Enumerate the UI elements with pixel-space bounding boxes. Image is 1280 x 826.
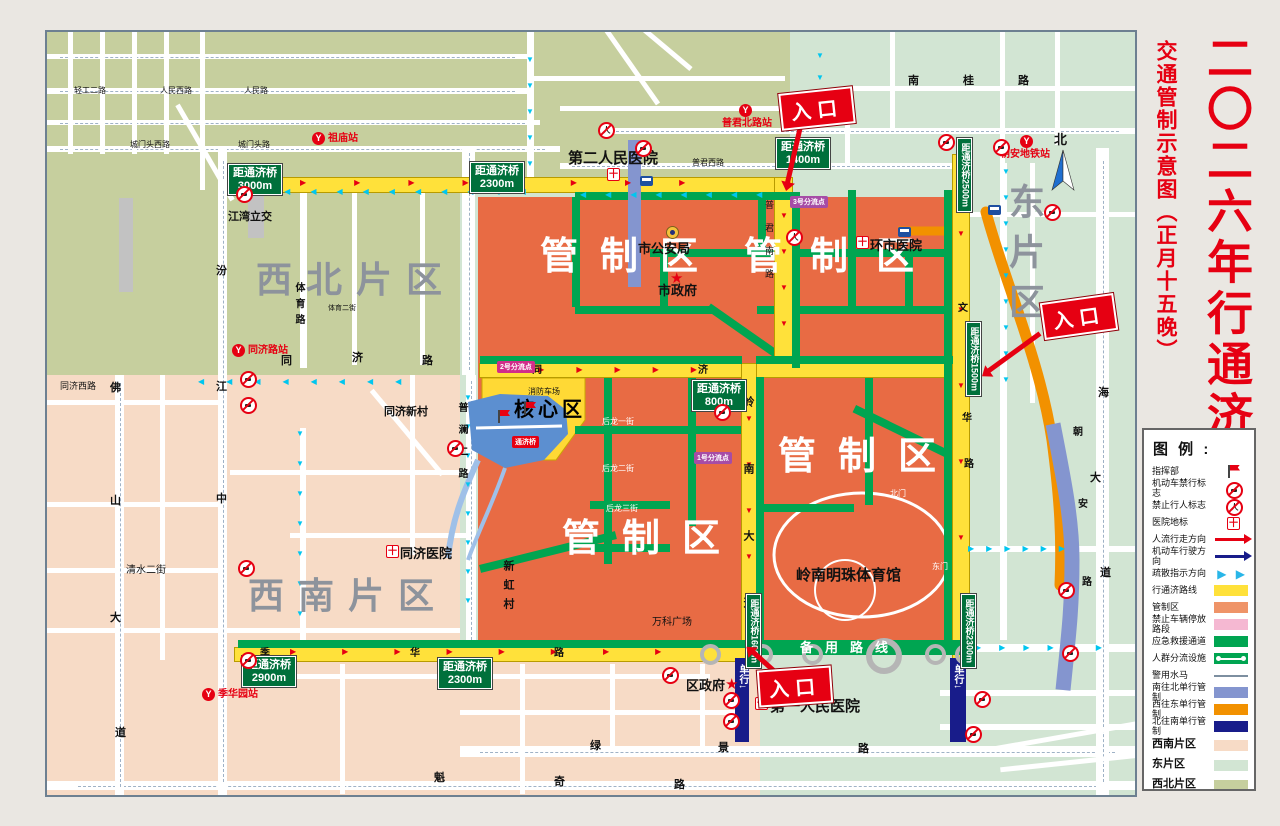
flow-arrow-icon: ▼ bbox=[526, 82, 534, 90]
road-label: 中 bbox=[216, 494, 227, 505]
flow-arrow-icon: ▶ bbox=[603, 648, 609, 656]
legend-swatch bbox=[1214, 619, 1248, 630]
flow-arrow-icon: ▼ bbox=[296, 430, 304, 438]
road-label: 佛 bbox=[110, 383, 121, 394]
distance-sign-text: 距通济桥 bbox=[781, 141, 825, 153]
road-label: 后龙三街 bbox=[606, 505, 638, 513]
district-label-northwest: 西北片区 bbox=[256, 262, 456, 298]
legend-item-label: 管制区 bbox=[1152, 603, 1214, 612]
landmark-jiangwan-interchange: 江湾立交 bbox=[228, 212, 272, 223]
road-label: 江 bbox=[216, 382, 227, 393]
flow-arrow-icon: ▼ bbox=[296, 460, 304, 468]
distance-sign-value: 2300m bbox=[448, 674, 482, 686]
flow-arrow-icon: ◀ bbox=[363, 188, 369, 196]
no-vehicle-sign-icon bbox=[238, 560, 255, 577]
legend-swatch-water-barrier bbox=[1214, 675, 1248, 677]
legend-icon-box bbox=[1214, 482, 1248, 496]
flow-arrow-icon: ▼ bbox=[957, 534, 965, 542]
map-panel: ◀◀◀◀◀◀◀◀◀◀◀◀◀◀◀◀◀◀◀◀◀◀◀◀◀◀◀▼▼▼▼▼▼▼▼▼▼▼▼▼… bbox=[45, 30, 1137, 797]
legend-item-label: 人流行走方向 bbox=[1152, 535, 1214, 544]
control-zone-label: 管制区 bbox=[562, 520, 742, 558]
landmark-huanshi-hospital: 环市医院 bbox=[870, 239, 922, 252]
legend-swatch bbox=[1214, 780, 1248, 791]
flow-arrow-icon: ▶ bbox=[655, 648, 661, 656]
road-label: 山 bbox=[110, 496, 121, 507]
control-zone-label: 管制区 bbox=[540, 238, 720, 276]
flow-arrow-icon: ▶ bbox=[290, 648, 296, 656]
no-vehicle-sign-icon bbox=[635, 140, 652, 157]
legend-item-label: 北往南单行管制 bbox=[1152, 717, 1214, 736]
flow-arrow-icon: ▶ bbox=[462, 179, 468, 187]
metro-station-icon: Y bbox=[232, 344, 245, 357]
distance-sign-text: 距通济桥 bbox=[233, 167, 277, 179]
flow-arrow-icon: ▶ bbox=[300, 179, 306, 187]
bus-stop-icon bbox=[988, 205, 1001, 215]
landmark-tongji-xincun: 同济新村 bbox=[384, 407, 428, 418]
no-vehicle-sign-icon bbox=[723, 692, 740, 709]
legend-arrow-icon bbox=[1215, 555, 1245, 558]
flow-arrow-icon: ▶ bbox=[394, 648, 400, 656]
road-label: 安 bbox=[1078, 500, 1088, 510]
road-label: 朝 bbox=[1073, 428, 1083, 438]
no-vehicle-sign-icon bbox=[1226, 482, 1243, 499]
road-label: 后龙一街 bbox=[602, 418, 634, 426]
road-label: 路 bbox=[422, 356, 433, 367]
flow-arrow-icon: ▶ bbox=[1004, 545, 1010, 553]
legend-item: 人群分流设施 bbox=[1152, 650, 1248, 667]
map-badge: 3号分流点 bbox=[790, 196, 828, 208]
legend-item-label: 警用水马 bbox=[1152, 671, 1214, 680]
metro-station-label: 普君北路站 bbox=[722, 119, 772, 129]
legend-item-label: 医院地标 bbox=[1152, 518, 1214, 527]
no-vehicle-sign-icon bbox=[447, 440, 464, 457]
no-vehicle-sign-icon bbox=[236, 186, 253, 203]
legend-item-label: 行通济路线 bbox=[1152, 586, 1214, 595]
flow-arrow-icon: ▶ bbox=[625, 179, 631, 187]
legend-item-label: 禁止车辆停放路段 bbox=[1152, 615, 1214, 634]
flow-arrow-icon: ◀ bbox=[395, 378, 401, 386]
legend-item: 禁止行人标志人 bbox=[1152, 497, 1248, 514]
direction-arrows: ▼▼▼▼▼ bbox=[957, 230, 965, 542]
emergency-lane bbox=[238, 640, 756, 648]
control-zone-label: 管制区 bbox=[778, 438, 958, 476]
flow-arrow-icon: ▶ bbox=[614, 366, 620, 374]
flow-arrow-icon: ▶ bbox=[1096, 644, 1102, 652]
road-label: 华 bbox=[410, 649, 420, 659]
hospital-landmark-icon: 十 bbox=[856, 236, 869, 249]
flow-arrow-icon: ◀ bbox=[311, 378, 317, 386]
distance-sign-text: 距通济桥 bbox=[964, 599, 974, 635]
legend-item: 西南片区 bbox=[1152, 735, 1248, 755]
metro-station-label: 祖庙站 bbox=[328, 134, 358, 144]
flow-arrow-icon: ▶ bbox=[1022, 545, 1028, 553]
no-vehicle-sign-icon bbox=[662, 667, 679, 684]
bus-stop-icon bbox=[640, 176, 653, 186]
legend-item-label: 西南片区 bbox=[1152, 739, 1214, 751]
legend-arrow-icon bbox=[1215, 538, 1245, 541]
flow-arrow-icon: ◀ bbox=[756, 191, 762, 199]
legend-swatch bbox=[1214, 636, 1248, 647]
command-post-flag-icon bbox=[498, 410, 500, 423]
metro-station-icon: Y bbox=[312, 132, 325, 145]
road-label: 体育二街 bbox=[328, 305, 356, 312]
direction-arrows: ▶▶▶▶▶▶ bbox=[968, 545, 1065, 553]
flow-arrow-icon: ▶ bbox=[1047, 644, 1053, 652]
map-badge: 2号分流点 bbox=[497, 361, 535, 373]
flow-arrow-icon: ▼ bbox=[464, 510, 472, 518]
road-label: 普君西路 bbox=[692, 159, 724, 167]
flow-arrow-icon: ▼ bbox=[957, 382, 965, 390]
traffic-map-poster: ◀◀◀◀◀◀◀◀◀◀◀◀◀◀◀◀◀◀◀◀◀◀◀◀◀◀◀▼▼▼▼▼▼▼▼▼▼▼▼▼… bbox=[0, 0, 1280, 826]
no-vehicle-sign-icon bbox=[240, 371, 257, 388]
flow-arrow-icon: ▶ bbox=[1023, 644, 1029, 652]
flow-arrow-icon: ▶ bbox=[499, 648, 505, 656]
hospital-landmark-icon: 十 bbox=[607, 168, 620, 181]
flow-arrow-icon: ◀ bbox=[226, 378, 232, 386]
emergency-lane bbox=[575, 426, 742, 434]
legend-icon-box: 十 bbox=[1214, 516, 1248, 530]
road-label: 绿 bbox=[590, 741, 601, 752]
distance-sign-text: 距通济桥 bbox=[960, 143, 970, 179]
legend-item-label: 指挥部 bbox=[1152, 467, 1214, 476]
flow-arrow-icon: ◀ bbox=[706, 191, 712, 199]
legend-icon-box: 人 bbox=[1214, 499, 1248, 513]
legend-icon-box bbox=[1214, 465, 1248, 479]
legend-item: 应急救援通道 bbox=[1152, 633, 1248, 650]
flow-arrow-icon: ◀ bbox=[681, 191, 687, 199]
flow-arrow-icon: ▶ bbox=[354, 179, 360, 187]
distance-sign-value: 2500m bbox=[960, 179, 970, 207]
legend-item: 北往南单行管制 bbox=[1152, 718, 1248, 735]
road-label: 普君南路 bbox=[764, 200, 773, 292]
no-vehicle-sign-icon bbox=[974, 691, 991, 708]
legend-swatch bbox=[1214, 740, 1248, 751]
flow-arrow-icon: ▶ bbox=[691, 366, 697, 374]
entrance-sign: 入口 bbox=[778, 86, 855, 131]
road-label: 华 bbox=[962, 414, 972, 424]
metro-station-icon: Y bbox=[202, 688, 215, 701]
government-star-icon: ★ bbox=[725, 677, 738, 692]
road-label: 体育路 bbox=[293, 282, 303, 330]
flow-arrow-icon: ◀ bbox=[310, 188, 316, 196]
no-vehicle-sign-icon bbox=[993, 139, 1010, 156]
legend-item: 禁止车辆停放路段 bbox=[1152, 616, 1248, 633]
flow-arrow-icon: ▶ bbox=[342, 648, 348, 656]
government-star-icon: ★ bbox=[670, 271, 683, 286]
flow-arrow-icon: ◀ bbox=[336, 188, 342, 196]
no-vehicle-sign-icon bbox=[1062, 645, 1079, 662]
road-label: 大 bbox=[1090, 473, 1101, 484]
flow-arrow-icon: ◀ bbox=[580, 191, 586, 199]
flow-arrow-icon: ▼ bbox=[1002, 376, 1010, 384]
flow-arrow-icon: ◀ bbox=[367, 378, 373, 386]
landmark-vanke-plaza: 万科广场 bbox=[652, 618, 692, 628]
metro-station-icon: Y bbox=[1020, 135, 1033, 148]
road-label: 海 bbox=[1098, 388, 1109, 399]
flow-arrow-icon: ▼ bbox=[780, 320, 788, 328]
road-label: 同济西路 bbox=[60, 382, 96, 391]
metro-station-label: 季华园站 bbox=[218, 690, 258, 700]
flow-arrow-icon: ◀ bbox=[731, 191, 737, 199]
flow-arrow-icon: ▼ bbox=[957, 230, 965, 238]
metro-station-icon: Y bbox=[739, 104, 752, 117]
road-label: 南桂路 bbox=[908, 76, 1073, 87]
flow-arrow-icon: ◀ bbox=[389, 188, 395, 196]
flow-arrow-icon: ◀ bbox=[198, 378, 204, 386]
legend-item-label: 东片区 bbox=[1152, 759, 1214, 771]
road-label: 路 bbox=[554, 649, 564, 659]
entrance-sign: 入口 bbox=[757, 665, 833, 707]
direction-arrows: ▶▶▶▶▶▶▶▶ bbox=[290, 648, 661, 656]
emergency-lane bbox=[756, 356, 953, 364]
no-vehicle-sign-icon bbox=[714, 404, 731, 421]
emergency-lane bbox=[575, 306, 712, 314]
road-label: 路 bbox=[674, 780, 685, 791]
no-vehicle-sign-icon bbox=[1044, 204, 1061, 221]
flow-arrow-icon: ▼ bbox=[296, 550, 304, 558]
compass-north-label: 北 bbox=[1054, 133, 1067, 146]
distance-sign: 距通济桥2500m bbox=[957, 138, 972, 212]
no-vehicle-sign-icon bbox=[938, 134, 955, 151]
legend-item: 东片区 bbox=[1152, 755, 1248, 775]
road-label: 济 bbox=[698, 366, 708, 376]
road-label: 城门头西路 bbox=[130, 141, 170, 149]
backup-route-label: 备用路线 bbox=[800, 641, 900, 654]
no-vehicle-sign-icon bbox=[240, 652, 257, 669]
road-label: 人民路 bbox=[244, 87, 268, 95]
flow-arrow-icon: ◀ bbox=[441, 188, 447, 196]
command-post-flag-icon bbox=[1228, 465, 1230, 478]
flow-arrow-icon: ▼ bbox=[816, 52, 824, 60]
map-badge: 1号分流点 bbox=[694, 452, 732, 464]
road-label: 道 bbox=[115, 728, 126, 739]
road-label: 轻工二路 bbox=[74, 87, 106, 95]
flow-arrow-icon: ▼ bbox=[296, 490, 304, 498]
flow-arrow-icon: ◀ bbox=[282, 378, 288, 386]
legend-heading: 图 例 : bbox=[1153, 438, 1254, 459]
direction-arrows: ◀◀◀◀◀◀◀◀ bbox=[198, 378, 401, 386]
road-label: 路 bbox=[1082, 578, 1092, 588]
distance-sign: 距通济桥1500m bbox=[966, 322, 981, 396]
legend-item: 机动车禁行标志 bbox=[1152, 480, 1248, 497]
emergency-lane bbox=[944, 190, 952, 650]
command-post-flag-icon bbox=[524, 402, 526, 415]
stadium-east-gate: 东门 bbox=[932, 563, 948, 571]
flow-arrow-icon: ▶ bbox=[446, 648, 452, 656]
no-vehicle-sign-icon bbox=[240, 397, 257, 414]
flow-arrow-icon: ◀ bbox=[630, 191, 636, 199]
flow-arrow-icon: ▼ bbox=[816, 74, 824, 82]
legend-item-label: 疏散指示方向 bbox=[1152, 569, 1214, 578]
legend-item-label: 应急救援通道 bbox=[1152, 637, 1214, 646]
distance-sign: 距通济桥2300m bbox=[470, 162, 524, 193]
road-label: 景 bbox=[718, 743, 729, 754]
flow-arrow-icon: ▼ bbox=[464, 568, 472, 576]
map-canvas: ◀◀◀◀◀◀◀◀◀◀◀◀◀◀◀◀◀◀◀◀◀◀◀◀◀◀◀▼▼▼▼▼▼▼▼▼▼▼▼▼… bbox=[45, 30, 1137, 797]
flow-arrow-icon: ▶ bbox=[408, 179, 414, 187]
legend-item: 机动车行驶方向 bbox=[1152, 548, 1248, 565]
distance-sign-value: 1500m bbox=[969, 363, 979, 391]
hospital-landmark-icon: 十 bbox=[1227, 517, 1240, 530]
hospital-landmark-icon: 十 bbox=[386, 545, 399, 558]
road-label: 路 bbox=[858, 744, 869, 755]
legend-item: 西北片区 bbox=[1152, 775, 1248, 791]
water-barrier-ring-icon bbox=[700, 644, 721, 665]
road-label: 道 bbox=[1100, 568, 1111, 579]
flow-arrow-icon: ▶ bbox=[986, 545, 992, 553]
no-vehicle-sign-icon bbox=[723, 713, 740, 730]
poster-title: 二〇二六年行通济 bbox=[1194, 34, 1260, 442]
road-label: 人民西路 bbox=[160, 87, 192, 95]
distance-sign: 距通济桥1400m bbox=[776, 138, 830, 169]
legend-swatch bbox=[1214, 721, 1248, 732]
legend-box: 图 例 : 指挥部机动车禁行标志禁止行人标志人医院地标十人流行走方向机动车行驶方… bbox=[1142, 428, 1256, 791]
distance-sign-text: 距通济桥 bbox=[697, 383, 741, 395]
flow-arrow-icon: ▼ bbox=[1002, 168, 1010, 176]
road-label: 城门头路 bbox=[238, 141, 270, 149]
road-label: 汾 bbox=[216, 266, 227, 277]
flow-arrow-icon: ▶ bbox=[679, 179, 685, 187]
police-badge-icon bbox=[666, 226, 679, 239]
road-label: 奇 bbox=[554, 777, 565, 788]
flow-arrow-icon: ▶ bbox=[571, 179, 577, 187]
road-label: 后龙二街 bbox=[602, 465, 634, 473]
distance-sign-text: 距通济桥 bbox=[749, 599, 759, 635]
flow-arrow-icon: ◀ bbox=[415, 188, 421, 196]
landmark-public-security-bureau: 市公安局 bbox=[638, 242, 690, 255]
direction-arrows: ▶▶▶▶▶▶ bbox=[975, 644, 1102, 652]
legend-item-label: 机动车禁行标志 bbox=[1152, 479, 1214, 498]
flow-arrow-icon: ▶ bbox=[1041, 545, 1047, 553]
canal bbox=[468, 468, 505, 560]
flow-arrow-icon: ▼ bbox=[464, 539, 472, 547]
legend-item-label: 西北片区 bbox=[1152, 779, 1214, 791]
distance-sign-text: 距通济桥 bbox=[969, 327, 979, 363]
stadium-north-gate: 北门 bbox=[890, 490, 906, 498]
flow-arrow-icon: ◀ bbox=[339, 378, 345, 386]
metro-station-label: 同济路站 bbox=[248, 346, 288, 356]
flow-arrow-icon: ◀ bbox=[284, 188, 290, 196]
distance-sign: 距通济桥2300m bbox=[438, 658, 492, 689]
road-label: 文 bbox=[958, 304, 968, 314]
landmark-district-government: 区政府 bbox=[686, 679, 725, 692]
legend-swatch bbox=[1214, 602, 1248, 613]
emergency-lane bbox=[792, 192, 800, 368]
compass-icon bbox=[1052, 150, 1063, 190]
distance-sign-text: 距通济桥 bbox=[443, 661, 487, 673]
flow-arrow-icon: ◀ bbox=[655, 191, 661, 199]
legend-item: 疏散指示方向▶ ▶ bbox=[1152, 565, 1248, 582]
map-overlay-graphics bbox=[45, 30, 1137, 797]
landmark-lingnan-pearl-stadium: 岭南明珠体育馆 bbox=[796, 568, 901, 583]
flow-arrow-icon: ▶ bbox=[653, 366, 659, 374]
flow-arrow-icon: ▼ bbox=[780, 284, 788, 292]
distance-sign-value: 2900m bbox=[252, 672, 286, 684]
legend-swatch bbox=[1214, 704, 1248, 715]
flow-arrow-icon: ▼ bbox=[296, 520, 304, 528]
flow-arrow-icon: ▼ bbox=[526, 134, 534, 142]
road-label: 魁 bbox=[434, 773, 445, 784]
legend-swatch bbox=[1214, 585, 1248, 596]
road-label: 同 bbox=[281, 356, 292, 367]
distance-sign-text: 距通济桥 bbox=[475, 165, 519, 177]
flow-arrow-icon: ◀ bbox=[605, 191, 611, 199]
landmark-xinhong-village: 新虹村 bbox=[502, 560, 513, 617]
landmark-fire-truck-area: 消防车场 bbox=[528, 388, 560, 396]
legend-item: 医院地标十 bbox=[1152, 514, 1248, 531]
flow-arrow-icon: ▼ bbox=[526, 56, 534, 64]
flow-arrow-icon: ▼ bbox=[526, 108, 534, 116]
emergency-lane bbox=[757, 504, 854, 512]
no-vehicle-sign-icon bbox=[965, 726, 982, 743]
flow-arrow-icon: ▶ bbox=[576, 366, 582, 374]
legend-item-label: 机动车行驶方向 bbox=[1152, 547, 1214, 566]
legend-item-label: 禁止行人标志 bbox=[1152, 501, 1214, 510]
flow-arrow-icon: ▶ bbox=[1059, 545, 1065, 553]
flow-arrow-icon: ▼ bbox=[780, 212, 788, 220]
water-barrier-ring-icon bbox=[925, 644, 946, 665]
flow-arrow-icon: ▼ bbox=[464, 394, 472, 402]
no-pedestrian-sign-icon: 人 bbox=[598, 122, 615, 139]
road-label: 济 bbox=[352, 353, 363, 364]
poster-subtitle: 交通管制示意图（正月十五晚） bbox=[1150, 40, 1180, 362]
road-label: 路 bbox=[964, 460, 974, 470]
direction-arrows: ▼▼▼▼▼ bbox=[526, 56, 534, 168]
legend-item-label: 人群分流设施 bbox=[1152, 654, 1214, 663]
distance-sign: 距通济桥2300m bbox=[961, 594, 976, 668]
district-label-east: 东片区 bbox=[1006, 183, 1042, 333]
tongji-bridge-line bbox=[476, 426, 562, 428]
legend-swatch bbox=[1214, 687, 1248, 698]
legend-swatch-crowd-diversion bbox=[1214, 653, 1248, 664]
distance-sign-value: 2300m bbox=[480, 178, 514, 190]
no-pedestrian-sign-icon: 人 bbox=[1226, 499, 1243, 516]
no-vehicle-sign-icon bbox=[1058, 582, 1075, 599]
map-badge: 通济桥 bbox=[512, 436, 539, 448]
direction-arrows: ◀◀◀◀◀◀◀◀ bbox=[580, 191, 762, 199]
bus-stop-icon bbox=[898, 227, 911, 237]
legend-swatch bbox=[1214, 760, 1248, 771]
distance-sign-value: 2300m bbox=[964, 635, 974, 663]
flow-arrow-icon: ▶ bbox=[999, 644, 1005, 652]
district-label-southwest: 西南片区 bbox=[248, 578, 448, 614]
landmark-tongji-hospital: 同济医院 bbox=[400, 547, 452, 560]
flow-arrow-icon: ▶ bbox=[968, 545, 974, 553]
road-label: 大 bbox=[110, 613, 121, 624]
legend-evacuation-arrows-icon: ▶ ▶ bbox=[1217, 567, 1248, 581]
road-label: 清水二街 bbox=[126, 566, 166, 576]
flow-arrow-icon: ▼ bbox=[464, 597, 472, 605]
no-pedestrian-sign-icon: 人 bbox=[786, 229, 803, 246]
flow-arrow-icon: ▼ bbox=[526, 160, 534, 168]
compass-icon bbox=[1063, 150, 1074, 190]
legend-item: 行通济路线 bbox=[1152, 582, 1248, 599]
